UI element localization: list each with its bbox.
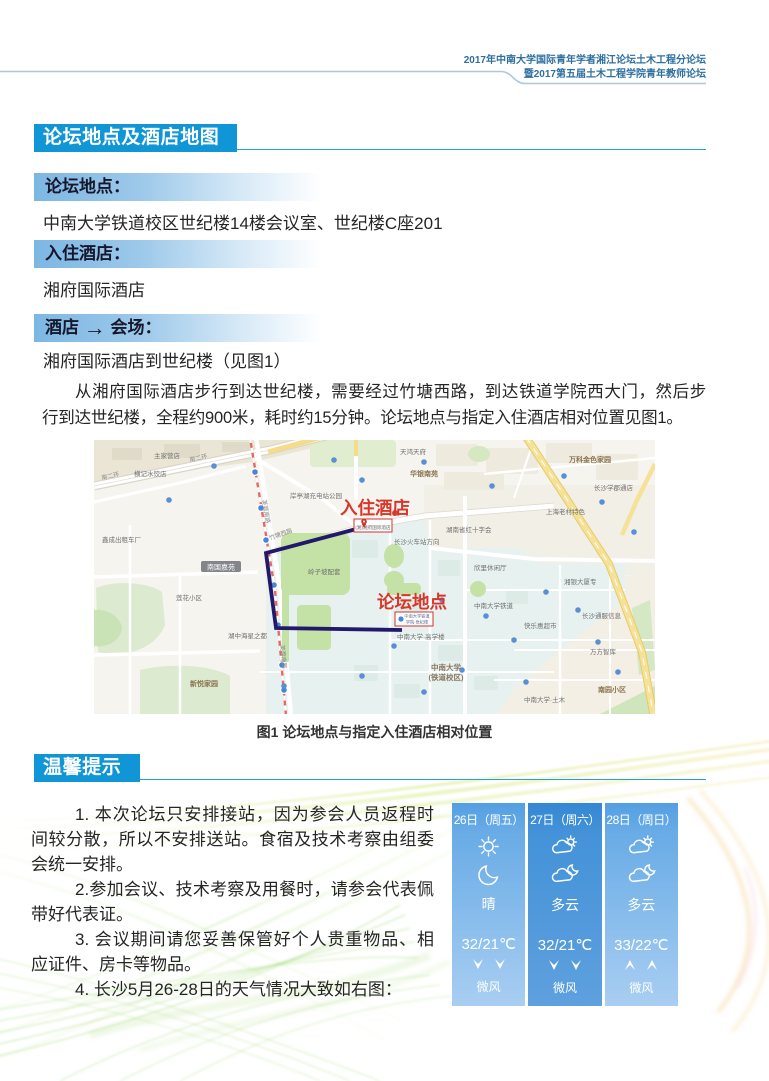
svg-text:入住酒店: 入住酒店 (340, 498, 410, 518)
svg-text:岸亭湖充电站公园: 岸亭湖充电站公园 (290, 491, 342, 500)
svg-text:快乐惠超市: 快乐惠超市 (524, 621, 557, 630)
svg-text:莲花小区: 莲花小区 (176, 593, 203, 602)
svg-text:万方智库: 万方智库 (590, 647, 617, 656)
svg-text:上海老村特色: 上海老村特色 (546, 507, 586, 516)
svg-text:主家营店: 主家营店 (154, 451, 181, 460)
svg-text:中南大学铁道: 中南大学铁道 (404, 613, 430, 620)
svg-text:南园小区: 南园小区 (598, 685, 626, 694)
svg-text:横记水饺店: 横记水饺店 (134, 469, 167, 478)
svg-text:湖中海星之都: 湖中海星之都 (228, 631, 268, 640)
svg-text:新悦家园: 新悦家园 (190, 679, 218, 688)
svg-text:岭子坡配套: 岭子坡配套 (308, 567, 341, 576)
svg-text:(铁道校区): (铁道校区) (429, 672, 464, 682)
svg-text:论坛地点: 论坛地点 (377, 592, 447, 612)
svg-text:长沙火车站方向: 长沙火车站方向 (394, 537, 440, 546)
svg-text:湘银大厦专: 湘银大厦专 (564, 577, 597, 586)
svg-text:中南大学: 中南大学 (431, 662, 461, 672)
svg-text:万科金色家园: 万科金色家园 (568, 455, 611, 464)
svg-text:中南大学铁道: 中南大学铁道 (474, 601, 514, 610)
svg-text:南国嘉苑: 南国嘉苑 (207, 563, 235, 572)
svg-text:(湘)湘府国际酒店: (湘)湘府国际酒店 (355, 524, 391, 531)
svg-text:鑫成出租车厂: 鑫成出租车厂 (102, 535, 142, 544)
svg-text:天鸿天府: 天鸿天府 (400, 447, 427, 456)
svg-text:湖南省红十字会: 湖南省红十字会 (446, 525, 492, 534)
svg-text:欣里休闲厅: 欣里休闲厅 (474, 563, 507, 572)
svg-text:长沙学郡通店: 长沙学郡通店 (594, 483, 634, 492)
svg-text:华银南苑: 华银南苑 (410, 469, 438, 478)
svg-text:长沙通服信息: 长沙通服信息 (582, 611, 622, 620)
svg-text:中南大学·高学楼: 中南大学·高学楼 (397, 632, 445, 641)
svg-text:中南大学·土木: 中南大学·土木 (524, 695, 566, 704)
svg-text:学院·世纪楼: 学院·世纪楼 (406, 619, 428, 626)
